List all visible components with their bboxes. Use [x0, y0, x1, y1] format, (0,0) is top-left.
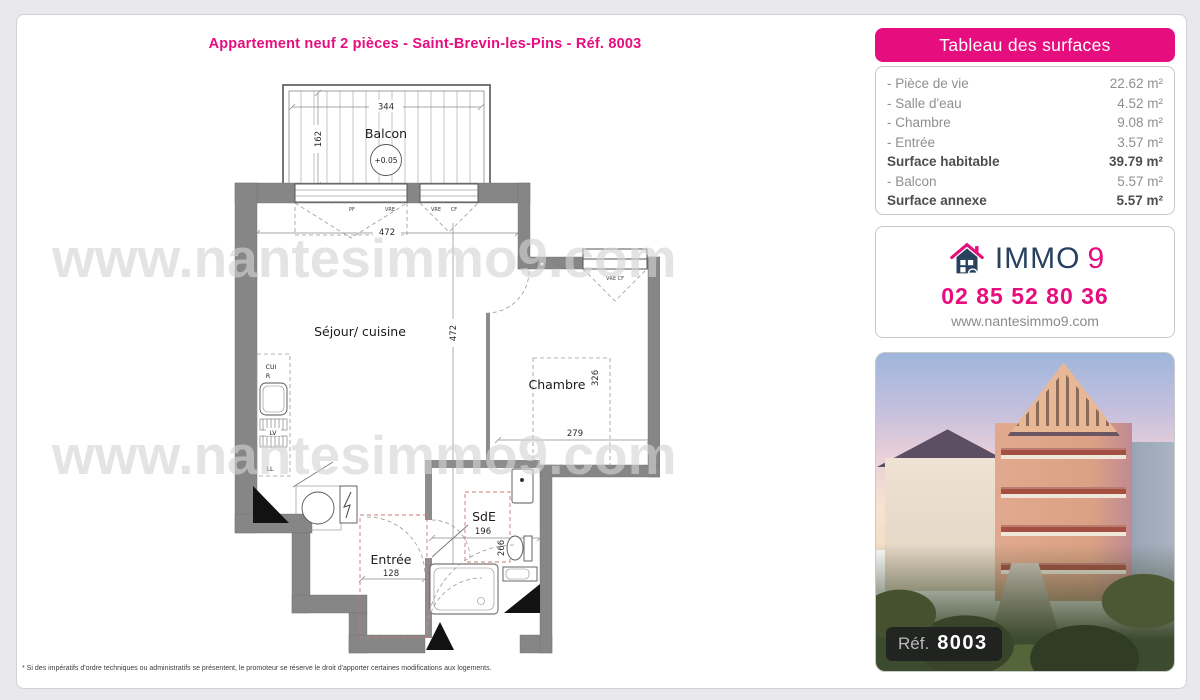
balcony: 344 162 Balcon +0.05: [283, 85, 490, 188]
agency-logo: IMMO9: [946, 237, 1104, 281]
photo-balcony-row: [1001, 525, 1126, 536]
window-label-vre1: VRE: [385, 207, 395, 213]
dim-balcony-depth: 162: [314, 131, 324, 147]
dim-sde-height: 266: [497, 540, 507, 556]
surface-value: 4.52 m²: [1117, 94, 1163, 114]
agency-contact-card: IMMO9 02 85 52 80 36 www.nantesimmo9.com: [875, 226, 1175, 338]
dim-chambre-height: 326: [591, 370, 601, 386]
surface-value: 22.62 m²: [1110, 74, 1163, 94]
room-label-sde: SdE: [472, 509, 496, 524]
surface-row-total-habitable: Surface habitable 39.79 m²: [887, 152, 1163, 172]
legal-footnote: * Si des impératifs d'ordre techniques o…: [22, 665, 492, 672]
reference-badge: Réf. 8003: [886, 627, 1002, 661]
surface-value: 5.57 m²: [1117, 172, 1163, 192]
kitchen-fixtures: CUI R LV LL: [253, 354, 357, 530]
brand-immo-text: IMMO: [995, 242, 1081, 276]
kitchen-label-r: R: [266, 373, 271, 380]
surface-label: - Pièce de vie: [887, 74, 969, 94]
building-photo: Réf. 8003: [875, 352, 1175, 672]
surface-label: Surface annexe: [887, 191, 987, 211]
kitchen-label-ll: LL: [267, 466, 274, 473]
house-logo-icon: [946, 238, 988, 280]
window-label-vre2: VRE: [431, 207, 441, 213]
surface-label: - Chambre: [887, 113, 951, 133]
kitchen-label-cui: CUI: [266, 364, 277, 371]
surface-value: 39.79 m²: [1109, 152, 1163, 172]
dim-entree-width: 128: [383, 569, 399, 579]
photo-balcony-row: [1001, 448, 1126, 459]
dim-sejour-width: 472: [379, 228, 395, 238]
dim-chambre-width: 279: [567, 429, 583, 439]
chambre-window: VRE CF: [540, 249, 647, 301]
surface-row: - Balcon 5.57 m²: [887, 172, 1163, 192]
agency-phone[interactable]: 02 85 52 80 36: [941, 283, 1108, 310]
brand-nine-text: 9: [1087, 242, 1104, 276]
page-title: Appartement neuf 2 pièces - Saint-Brevin…: [140, 36, 710, 52]
reference-label: Réf.: [898, 634, 929, 654]
surfaces-table: - Pièce de vie 22.62 m² - Salle d'eau 4.…: [875, 66, 1175, 215]
surface-label: - Balcon: [887, 172, 937, 192]
agency-website-link[interactable]: www.nantesimmo9.com: [951, 313, 1099, 329]
dim-sde-width: 196: [475, 527, 491, 537]
window-label-pf: PF: [349, 207, 355, 213]
surface-value: 3.57 m²: [1117, 133, 1163, 153]
elevation-label: +0.05: [375, 156, 398, 165]
room-label-chambre: Chambre: [529, 377, 586, 392]
surface-row-total-annexe: Surface annexe 5.57 m²: [887, 191, 1163, 211]
surface-label: Surface habitable: [887, 152, 1000, 172]
dim-sejour-height: 472: [449, 325, 459, 341]
surface-label: - Entrée: [887, 133, 935, 153]
room-label-entree: Entrée: [371, 552, 412, 567]
kitchen-label-lv: LV: [270, 430, 278, 437]
room-label-sejour: Séjour/ cuisine: [314, 324, 406, 339]
salle-eau: SdE 196 266: [425, 460, 543, 638]
window-label-cf: CF: [451, 207, 457, 213]
surface-value: 9.08 m²: [1117, 113, 1163, 133]
dim-balcony-width: 344: [378, 103, 394, 113]
surface-row: - Salle d'eau 4.52 m²: [887, 94, 1163, 114]
surface-row: - Chambre 9.08 m²: [887, 113, 1163, 133]
surface-value: 5.57 m²: [1116, 191, 1163, 211]
surface-row: - Entrée 3.57 m²: [887, 133, 1163, 153]
reference-number: 8003: [937, 632, 988, 655]
surfaces-table-header: Tableau des surfaces: [875, 28, 1175, 62]
surface-label: - Salle d'eau: [887, 94, 962, 114]
chambre: Chambre 326 279: [486, 271, 653, 465]
room-label-balcon: Balcon: [365, 126, 407, 141]
photo-balcony-row: [1001, 487, 1126, 498]
surface-row: - Pièce de vie 22.62 m²: [887, 74, 1163, 94]
window-label-vre-cf: VRE CF: [606, 276, 624, 282]
floor-plan: 344 162 Balcon +0.05 PF VRE: [230, 80, 660, 655]
